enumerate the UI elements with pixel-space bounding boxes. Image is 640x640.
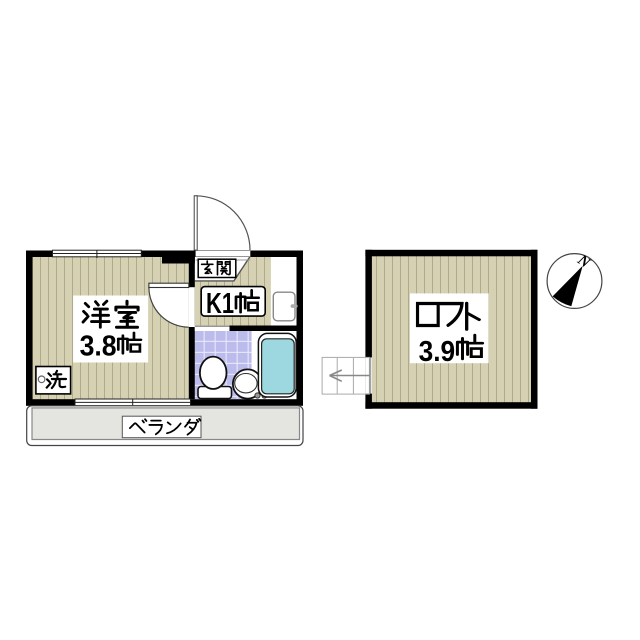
- svg-text:3.9: 3.9: [419, 336, 456, 368]
- svg-text:K1: K1: [206, 288, 234, 320]
- svg-text:3.8: 3.8: [80, 331, 117, 363]
